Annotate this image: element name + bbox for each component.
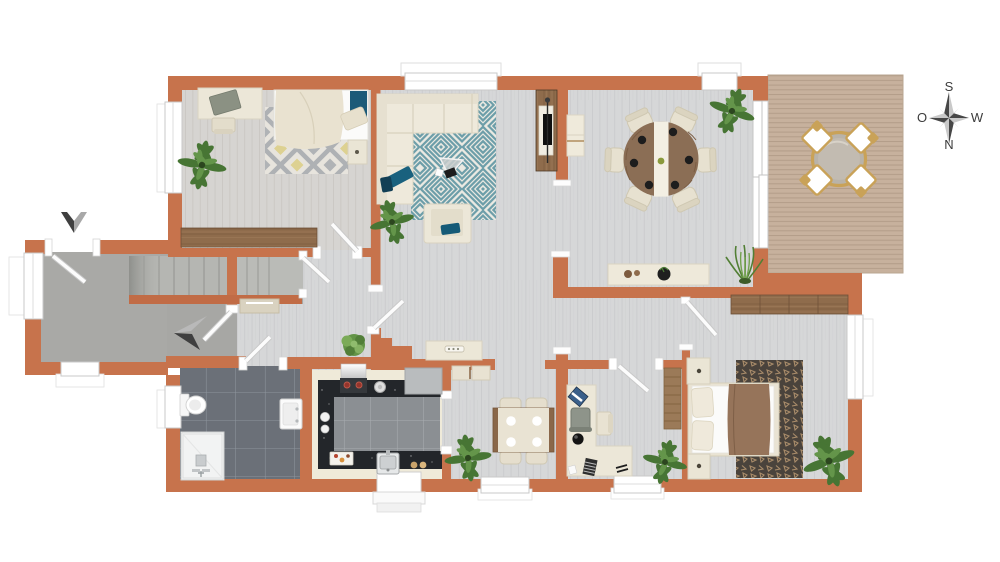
- svg-text:S: S: [945, 79, 954, 94]
- svg-text:W: W: [971, 110, 984, 125]
- svg-text:O: O: [917, 110, 927, 125]
- svg-text:N: N: [944, 137, 953, 152]
